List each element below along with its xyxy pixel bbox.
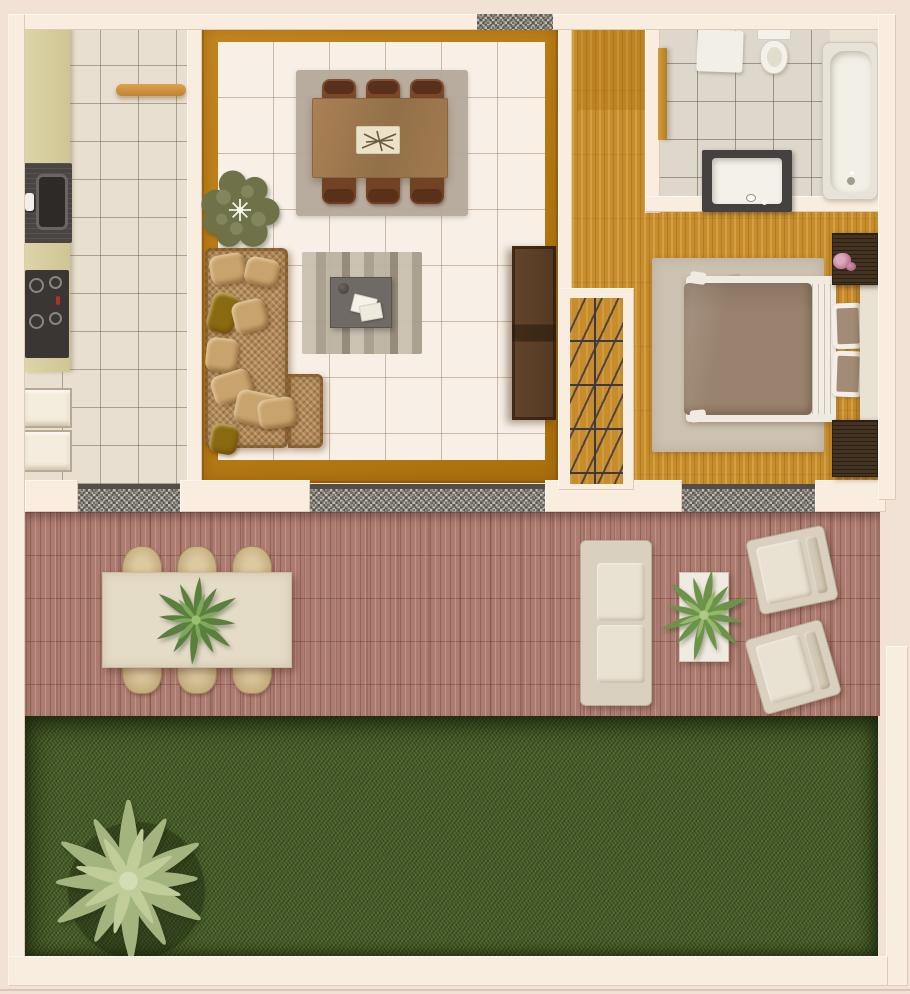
sink-faucet [25, 193, 34, 211]
bathtub-drain [847, 177, 855, 185]
sofa-pillow [204, 336, 239, 373]
toilet-bowl [760, 40, 788, 74]
bed-headboard [860, 280, 878, 424]
threshold-kitchen [78, 484, 180, 512]
kitchen-sink [24, 163, 72, 243]
threshold-living [310, 484, 545, 512]
cooktop-knob [56, 296, 60, 305]
dining-tray [356, 126, 400, 154]
burner [49, 312, 62, 325]
bathtub [822, 42, 878, 200]
bathroom-vanity [702, 150, 792, 212]
exterior-wall-bottom [8, 956, 888, 986]
nightstand [832, 420, 878, 477]
bed-duvet-corner [689, 271, 707, 285]
outdoor-table-plant [150, 574, 242, 666]
outdoor-armchair [745, 525, 839, 616]
threshold-bedroom [682, 484, 815, 512]
bath-mat [696, 29, 743, 73]
kitchen-appliance [22, 388, 72, 428]
exterior-wall-top [8, 14, 895, 30]
outdoor-sofa-cushion [597, 563, 645, 621]
bed-sheet-band [812, 284, 832, 414]
kitchen-living-wall [187, 28, 202, 490]
exterior-wall-right-lower [886, 646, 908, 986]
vanity-faucet [746, 194, 756, 202]
toilet-bowl-inner [767, 47, 782, 67]
bottom-wall-segment [25, 480, 78, 512]
sideboard [512, 246, 556, 420]
kitchen-appliance [22, 430, 72, 472]
bed [684, 276, 878, 424]
exterior-wall-right-upper [878, 14, 896, 500]
outdoor-sofa-cushion [597, 625, 645, 683]
burner [29, 278, 44, 293]
living-room-plant [194, 164, 286, 256]
side-table-plant [657, 568, 751, 662]
coffee-table-bowl [338, 283, 349, 294]
burner [49, 276, 62, 289]
bathroom-door [658, 48, 667, 140]
bed-duvet [684, 283, 812, 415]
plot-boundary-line [0, 989, 910, 991]
bottom-wall-segment [815, 480, 886, 512]
kitchen-shelf [116, 84, 186, 96]
burner [29, 314, 44, 329]
sink-basin [36, 174, 68, 230]
sofa-pillow [256, 396, 298, 431]
bed-duvet-corner [689, 409, 706, 423]
bathtub-faucet [850, 171, 854, 175]
outdoor-sofa [580, 540, 652, 706]
threshold-top-window [477, 14, 553, 30]
tray-twigs [357, 127, 401, 155]
staircase [570, 298, 623, 484]
kitchen-cooktop [25, 270, 69, 358]
palm-tree [46, 800, 211, 962]
armchair-cushion [756, 539, 813, 605]
vanity-faucet-dot [762, 200, 767, 205]
bottom-wall-segment [180, 480, 310, 512]
flower-decoration-bud [846, 262, 856, 271]
exterior-wall-left [8, 14, 25, 958]
floor-plan-render [0, 0, 910, 994]
front-door [577, 28, 655, 110]
